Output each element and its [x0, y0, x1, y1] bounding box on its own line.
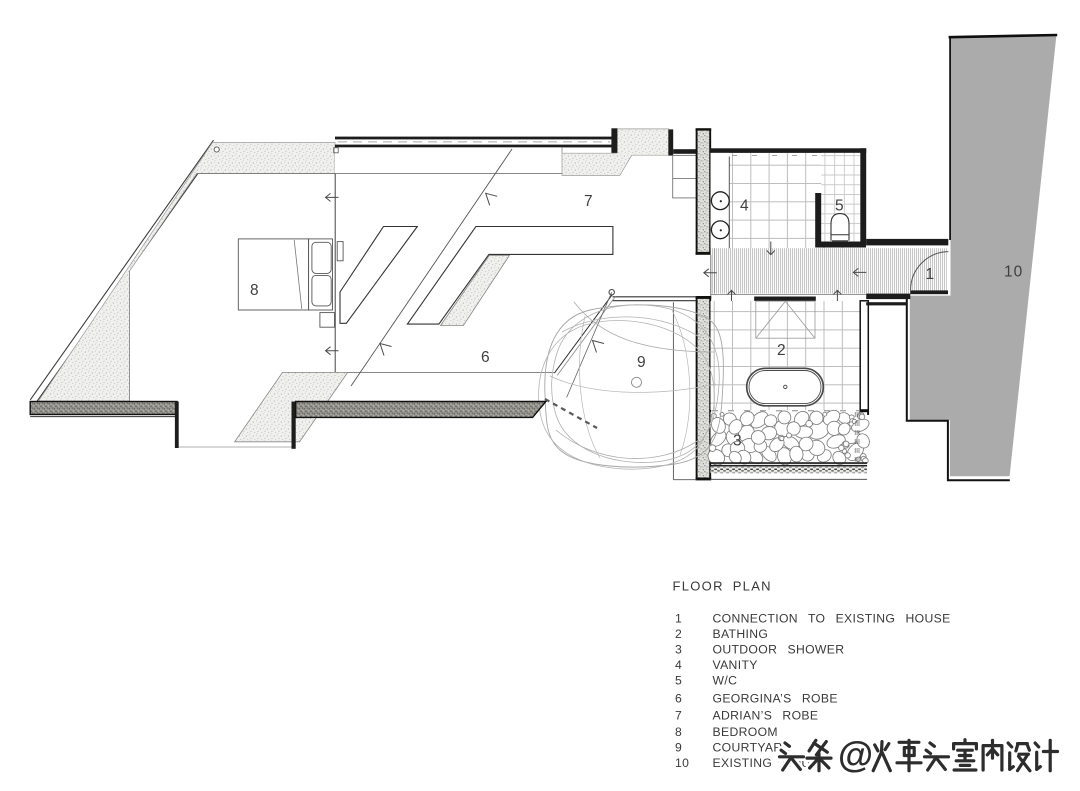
svg-text:1: 1	[675, 612, 682, 626]
svg-text:8: 8	[250, 282, 259, 299]
svg-text:OUTDOOR SHOWER: OUTDOOR SHOWER	[713, 643, 845, 657]
svg-text:4: 4	[675, 658, 682, 672]
svg-text:9: 9	[675, 741, 682, 755]
svg-text:VANITY: VANITY	[713, 658, 758, 672]
svg-text:BEDROOM: BEDROOM	[713, 725, 778, 739]
svg-text:10: 10	[675, 756, 689, 770]
svg-text:2: 2	[675, 627, 682, 641]
svg-text:3: 3	[733, 433, 742, 450]
svg-text:ADRIAN’S ROBE: ADRIAN’S ROBE	[713, 709, 819, 723]
svg-text:4: 4	[740, 198, 749, 215]
svg-text:5: 5	[835, 198, 844, 215]
svg-text:6: 6	[675, 692, 682, 706]
svg-text:3: 3	[675, 643, 682, 657]
svg-text:W/C: W/C	[713, 674, 738, 688]
svg-text:8: 8	[675, 725, 682, 739]
svg-text:9: 9	[637, 354, 646, 371]
svg-text:BATHING: BATHING	[713, 627, 769, 641]
svg-text:5: 5	[675, 674, 682, 688]
svg-text:CONNECTION TO EXISTING HOUSE: CONNECTION TO EXISTING HOUSE	[713, 612, 951, 626]
svg-text:10: 10	[1004, 264, 1023, 281]
svg-text:2: 2	[777, 342, 786, 359]
svg-text:@: @	[838, 734, 873, 775]
svg-text:7: 7	[584, 193, 593, 210]
svg-text:FLOOR PLAN: FLOOR PLAN	[673, 579, 772, 594]
svg-text:7: 7	[675, 709, 682, 723]
svg-text:1: 1	[926, 266, 935, 283]
svg-text:GEORGINA’S ROBE: GEORGINA’S ROBE	[713, 692, 838, 706]
svg-text:6: 6	[481, 349, 490, 366]
